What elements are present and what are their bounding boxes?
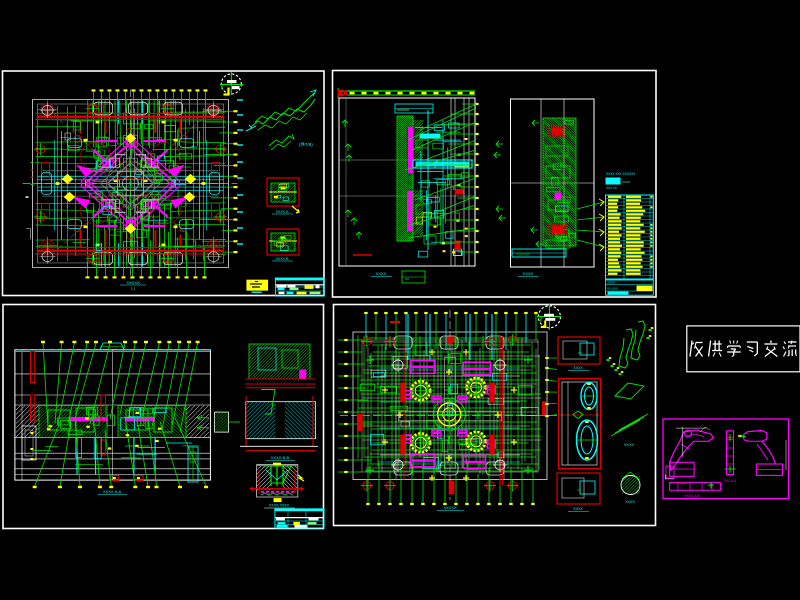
svg-text:XXXX: XXXX [376,271,387,276]
svg-text:XXXX: XXXX [573,366,583,370]
svg-text:XX: XX [405,277,409,281]
svg-text:XX/XX: XX/XX [624,443,635,447]
svg-text:(件7/8): (件7/8) [299,141,313,148]
svg-text:XXXX: XXXX [622,180,630,184]
svg-text:XXXXX: XXXXX [126,280,140,285]
svg-text:XXXX: XXXX [573,507,583,511]
svg-text:XXXXXX: XXXXXX [397,108,409,112]
svg-text:XXX XX: XXX XX [606,186,617,190]
svg-text:XXXX B-B: XXXX B-B [271,455,290,460]
svg-text:XX: XX [578,351,582,355]
svg-text:XXXX-B: XXXX-B [276,257,290,261]
svg-text:XXXX: XXXX [607,281,615,285]
svg-text:XX XXX: XX XXX [607,287,618,291]
svg-text:XXXX: XXXX [523,271,534,276]
svg-text:XXX A-A: XXX A-A [724,479,737,483]
svg-text:XXXX A-A: XXXX A-A [103,489,122,494]
svg-text:XX: XX [577,488,581,492]
svg-text:XXXX: XXXX [625,500,635,504]
svg-text:XXXX XXX XXXXXX: XXXX XXX XXXXXX [606,172,636,176]
svg-text:XXXXXXX: XXXXXXX [516,253,530,257]
svg-text:XXXX A-A: XXXX A-A [684,494,700,498]
svg-text:XXXXX: XXXXX [443,505,457,510]
svg-text:1:1: 1:1 [131,287,136,291]
svg-text:XXXX XXXX: XXXX XXXX [269,504,290,508]
svg-text:XXXX-A: XXXX-A [276,210,290,214]
